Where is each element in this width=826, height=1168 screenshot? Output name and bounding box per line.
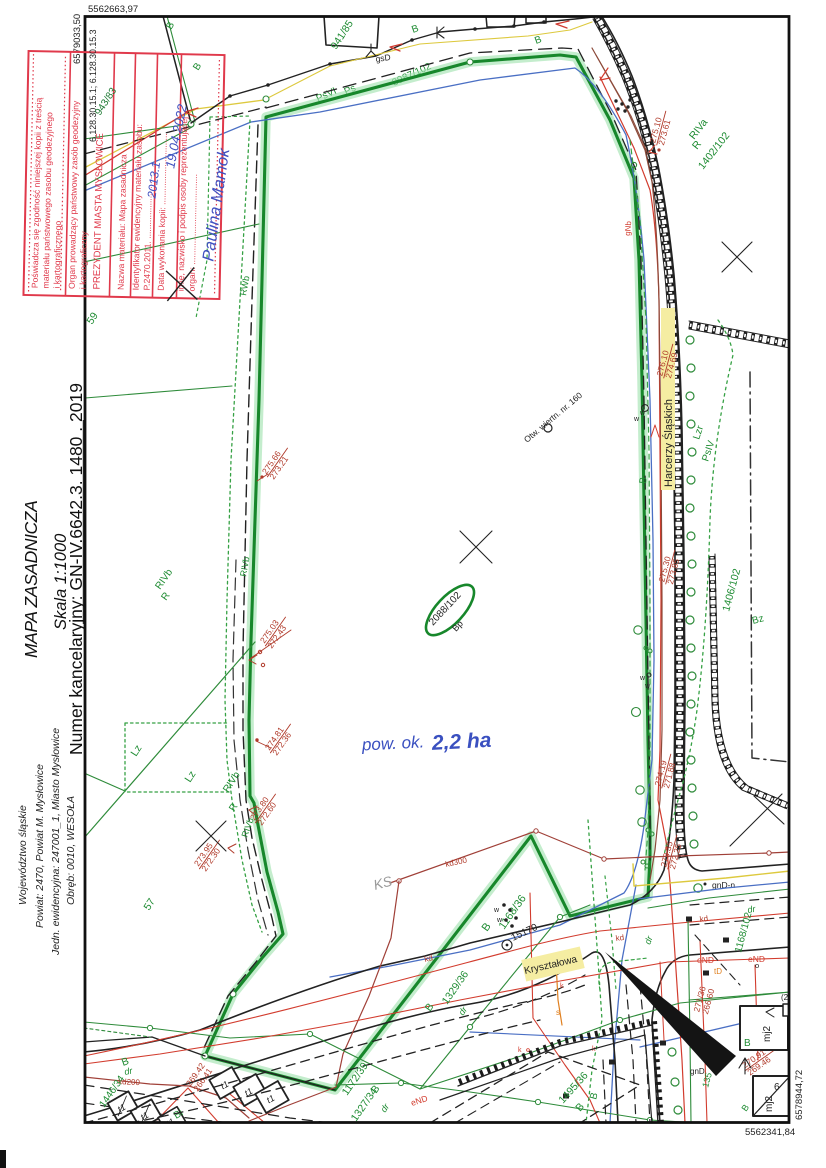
svg-text:Obręb: 0010, WESOŁA: Obręb: 0010, WESOŁA [65, 796, 77, 905]
svg-text:pow. ok.: pow. ok. [360, 732, 424, 754]
svg-text:w: w [633, 416, 640, 423]
svg-text:2,2 ha: 2,2 ha [430, 729, 492, 755]
svg-text:w: w [644, 683, 651, 690]
svg-text:i kartograficzny: i kartograficzny [78, 231, 89, 290]
svg-text:o: o [755, 961, 759, 970]
svg-text:kd: kd [699, 914, 709, 924]
svg-text:B: B [638, 476, 650, 484]
svg-text:gsD: gsD [375, 52, 391, 64]
svg-text:gNb: gNb [623, 220, 633, 236]
svg-text:s: s [556, 1008, 560, 1017]
svg-text:5562341,84: 5562341,84 [745, 1127, 795, 1138]
svg-text:6579033,50: 6579033,50 [72, 14, 83, 64]
svg-text:Harcerzy Śląskich: Harcerzy Śląskich [662, 399, 675, 487]
svg-text:k: k [518, 1047, 522, 1054]
svg-text:Powiat: 2470, Powiat M. Mysłow: Powiat: 2470, Powiat M. Mysłowice [34, 764, 46, 928]
svg-text:k: k [560, 983, 564, 990]
svg-text:mj2: mj2 [764, 1095, 775, 1112]
svg-text:6: 6 [774, 1082, 780, 1093]
svg-text:Jedn. ewidencyjna: 247001_1, M: Jedn. ewidencyjna: 247001_1, Miasto Mysł… [50, 728, 62, 956]
svg-text:w: w [639, 675, 646, 682]
svg-text:MAPA ZASADNICZA: MAPA ZASADNICZA [21, 501, 41, 658]
svg-text:6578944,72: 6578944,72 [794, 1070, 805, 1120]
svg-text:Województwo śląskie: Województwo śląskie [17, 805, 29, 905]
svg-text:(2: (2 [781, 993, 789, 1002]
svg-text:i kartograficznego: i kartograficznego [52, 220, 63, 288]
svg-text:w: w [496, 917, 503, 924]
svg-text:kd: kd [615, 933, 625, 943]
svg-text:w: w [493, 907, 500, 914]
svg-text:B: B [744, 1038, 751, 1049]
svg-text:eND: eND [697, 955, 714, 965]
svg-text:5562663,97: 5562663,97 [88, 4, 138, 15]
svg-text:gnD: gnD [690, 1067, 705, 1076]
svg-text:mj2: mj2 [762, 1025, 773, 1042]
svg-text:tD: tD [714, 967, 722, 976]
svg-text:6.128.30.15.1; 6.128.30.15.3: 6.128.30.15.1; 6.128.30.15.3 [88, 29, 98, 142]
